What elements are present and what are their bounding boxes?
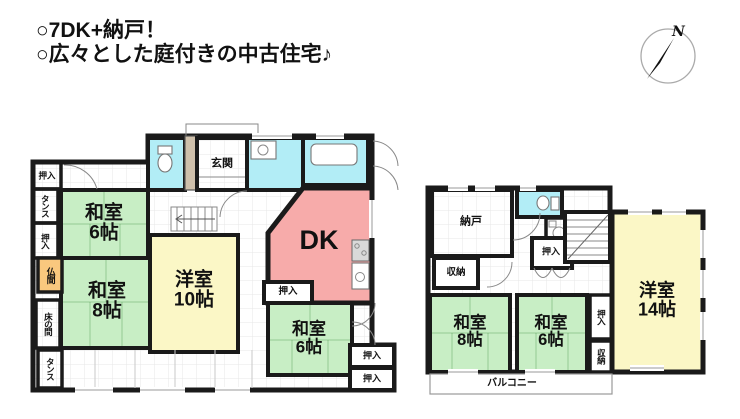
room-size: 6帖 [85,223,123,243]
label-shuno-left: 収納 [446,268,465,278]
label-oshiire-center-f1: 押入 [278,287,297,297]
label-balcony: バルコニー [487,379,537,389]
label-shuno-right: 収納 [597,349,606,364]
room-size: 6帖 [535,332,568,349]
room-size: 8帖 [88,301,126,321]
label-oshiire-right-lower: 押入 [363,374,381,383]
room-name: 和室 [88,281,126,301]
compass-north-label: N [672,24,685,40]
kitchen-sink-icon [352,263,369,289]
label-washitsu6b: 和室 6帖 [292,320,326,355]
washing-machine-icon [251,141,276,159]
room-name: 洋室 [174,270,214,290]
label-yoshitsu14: 洋室 14帖 [638,281,676,318]
toilet-tank-icon [158,146,172,154]
label-genkan: 玄関 [211,158,233,169]
label-washitsu6-f2: 和室 6帖 [535,315,568,349]
label-oshiire-left: 押入 [41,234,50,249]
room-name: 洋室 [638,281,676,300]
label-oshiire-center-f2: 押入 [542,247,560,256]
stove-icon [352,240,369,261]
label-washitsu6a: 和室 6帖 [85,203,123,243]
room-name: 和室 [454,315,487,332]
exterior-door-arc-1 [373,141,398,166]
label-tansu-lower: タンス [46,358,55,381]
label-yoshitsu10: 洋室 10帖 [174,270,214,310]
label-butsuma: 仏間 [45,267,54,283]
room-name: 和室 [292,320,326,338]
room-size: 6帖 [292,338,326,356]
label-tokonoma: 床の間 [44,313,53,336]
stairs-floor2 [565,212,610,262]
toilet-tank-icon-f2 [551,197,559,210]
compass-circle [641,29,695,83]
compass [641,29,695,83]
label-nando: 納戸 [460,216,482,227]
bathtub-icon [311,144,357,165]
label-washitsu8-f1: 和室 8帖 [88,281,126,321]
room-size: 10帖 [174,290,214,310]
label-oshiire-right-upper: 押入 [363,351,381,360]
label-washitsu8-f2: 和室 8帖 [454,315,487,349]
label-oshiire-top-left: 押入 [38,172,55,181]
label-oshiire-right-f2: 押入 [597,310,606,325]
exterior-door-arc-2 [373,166,398,190]
room-size: 14帖 [638,300,676,319]
room-name: 和室 [535,315,568,332]
floorplan-page: ○7DK+納戸！ ○広々とした庭付きの中古住宅♪ [0,0,740,419]
toilet-icon-f2 [537,196,549,210]
room-name: 和室 [85,203,123,223]
toilet-icon [158,154,172,172]
room-size: 8帖 [454,332,487,349]
stairs-floor1 [171,207,217,231]
label-dk: DK [300,226,339,254]
label-tansu-upper: タンス [41,195,50,218]
